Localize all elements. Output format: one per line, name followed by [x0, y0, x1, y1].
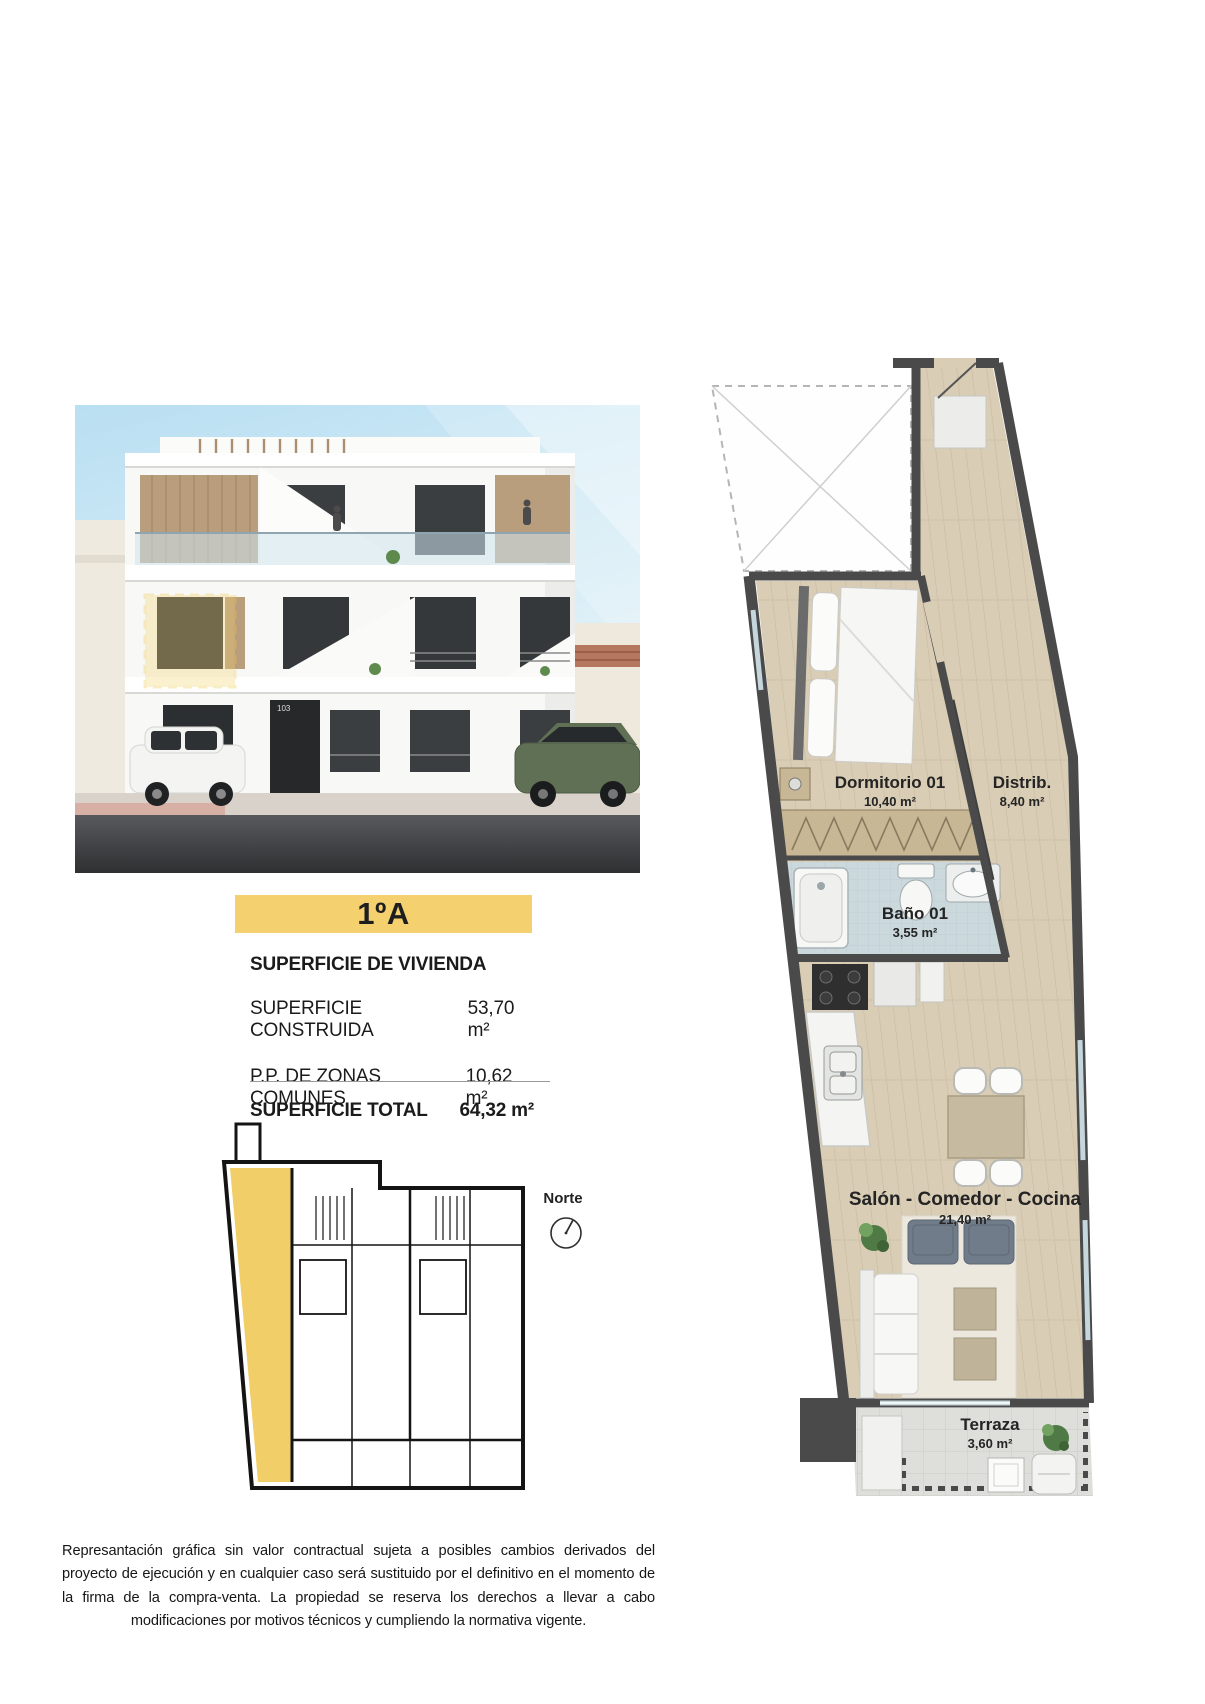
- stove: [812, 964, 868, 1010]
- hall-closet: [934, 396, 986, 448]
- surface-row-construida: SUPERFICIE CONSTRUIDA 53,70 m²: [250, 998, 534, 1042]
- site-plan-svg: [205, 1110, 545, 1500]
- unit-highlight-box: [145, 595, 235, 687]
- dining-set: [948, 1068, 1024, 1186]
- building-render-image: 103: [75, 405, 640, 873]
- surface-table-title: SUPERFICIE DE VIVIENDA: [250, 954, 534, 976]
- sofa: [860, 1270, 918, 1398]
- surface-row-label: SUPERFICIE CONSTRUIDA: [250, 998, 468, 1042]
- site-plan: [205, 1110, 545, 1500]
- room-label-terraza: Terraza 3,60 m²: [960, 1416, 1019, 1451]
- terrace-table: [988, 1458, 1024, 1492]
- dining-table: [948, 1096, 1024, 1158]
- north-compass-icon: [548, 1214, 584, 1250]
- surface-table-divider: [250, 1081, 550, 1082]
- nightstand: [780, 768, 810, 800]
- coffee-table: [954, 1338, 996, 1380]
- living-area: [859, 1216, 1016, 1398]
- unit-banner: 1ºA: [235, 895, 532, 933]
- surface-row-value: 53,70 m²: [468, 998, 534, 1042]
- coffee-table: [954, 1288, 996, 1330]
- terrace-area: [800, 1398, 1093, 1496]
- building-render-svg: 103: [75, 405, 640, 873]
- brochure-page: 103: [0, 0, 1205, 1704]
- unit-label: 1ºA: [357, 896, 409, 932]
- room-label-salon: Salón - Comedor - Cocina 21,40 m²: [849, 1190, 1081, 1227]
- legal-disclaimer: Represantación gráfica sin valor contrac…: [62, 1540, 655, 1633]
- room-label-dormitorio: Dormitorio 01 10,40 m²: [835, 774, 946, 809]
- room-label-distribuidor: Distrib. 8,40 m²: [993, 774, 1052, 809]
- wardrobe: [780, 810, 983, 856]
- building-number: 103: [277, 704, 291, 713]
- compass-label: Norte: [543, 1190, 582, 1207]
- undefined-area: [712, 386, 911, 571]
- room-label-bano: Baño 01 3,55 m²: [882, 905, 948, 940]
- kitchen-sink: [824, 1046, 862, 1100]
